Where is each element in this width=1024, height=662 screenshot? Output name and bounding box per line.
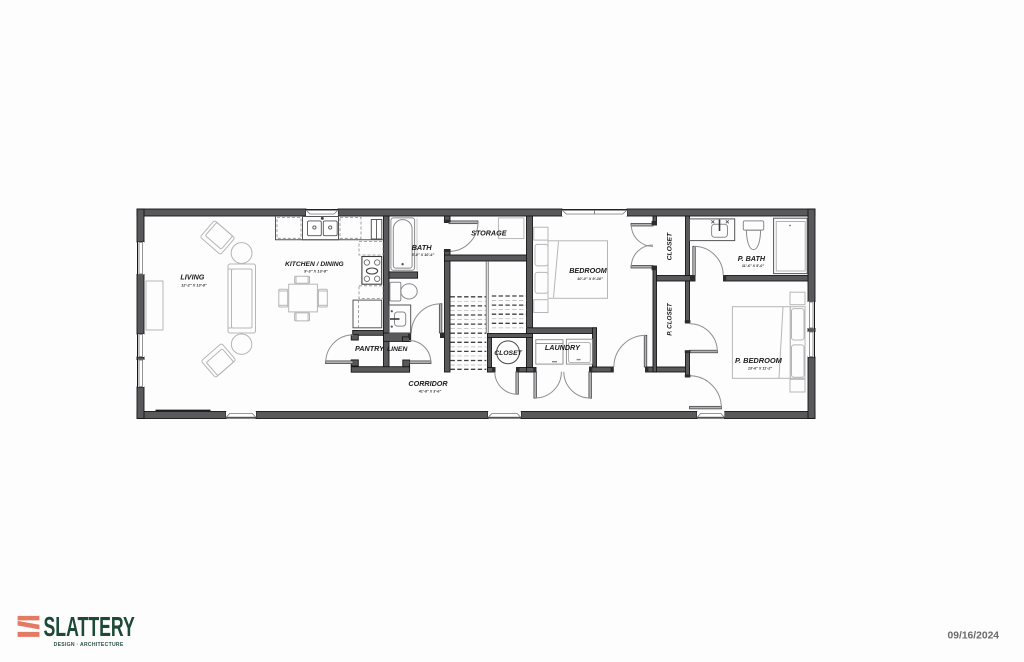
svg-text:10'-0" X 9'-10": 10'-0" X 9'-10" [577,276,603,281]
svg-text:LIVING: LIVING [180,273,204,282]
svg-text:41'-8" X 3'-6": 41'-8" X 3'-6" [418,389,442,393]
svg-text:13'-6" X 11'-2": 13'-6" X 11'-2" [748,367,772,371]
svg-text:SLATTERY: SLATTERY [44,611,136,642]
svg-text:BATH: BATH [412,243,433,252]
svg-text:BEDROOM: BEDROOM [569,266,608,275]
svg-text:CORRIDOR: CORRIDOR [408,379,448,388]
svg-text:DESIGN · ARCHITECTURE: DESIGN · ARCHITECTURE [54,642,124,648]
svg-text:P. BEDROOM: P. BEDROOM [735,356,783,365]
svg-text:STORAGE: STORAGE [471,229,507,238]
svg-text:KITCHEN / DINING: KITCHEN / DINING [285,261,344,268]
svg-text:09/16/2024: 09/16/2024 [948,631,1000,642]
svg-text:9'-3" X 13'-8": 9'-3" X 13'-8" [304,269,328,274]
svg-text:LINEN: LINEN [387,346,408,353]
svg-text:LAUNDRY: LAUNDRY [545,343,581,352]
svg-text:12'-2" X 13'-8": 12'-2" X 13'-8" [181,283,207,288]
svg-text:P. CLOSET: P. CLOSET [666,302,673,336]
svg-text:CLOSET: CLOSET [666,232,673,260]
svg-text:P. BATH: P. BATH [738,254,766,263]
svg-text:11'-6" X 5'-0": 11'-6" X 5'-0" [742,264,764,268]
svg-text:CLOSET: CLOSET [494,350,522,357]
svg-text:5'-0" X 10'-4": 5'-0" X 10'-4" [412,253,435,257]
svg-text:PANTRY: PANTRY [355,344,385,353]
